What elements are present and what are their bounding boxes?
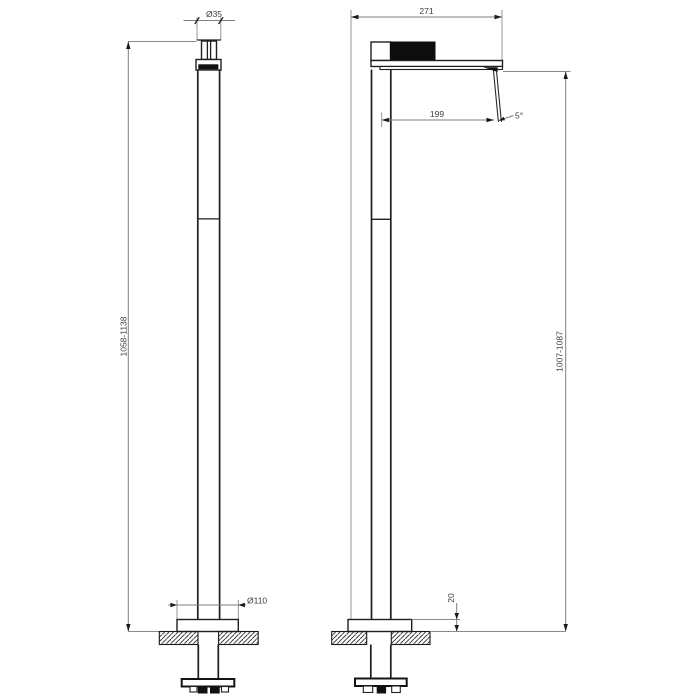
under-floor-shank (182, 645, 235, 694)
arrowhead (564, 72, 568, 80)
dim-label-base-diameter: Ø110 (247, 596, 267, 606)
floor-section (128, 632, 258, 645)
dim-label-reach: 199 (430, 109, 444, 119)
arrowhead (499, 117, 505, 121)
top-diameter-dimension: Ø35 (184, 9, 236, 40)
handle-body (202, 41, 217, 60)
floor-hatch (219, 632, 259, 645)
mounting-bolt (222, 687, 229, 693)
faucet-handle (196, 40, 221, 70)
arrowhead (126, 624, 130, 632)
height-dimension: 1058-1138 (119, 42, 197, 632)
drawing-page: Ø35 1058-1138 Ø110 (0, 0, 700, 700)
water-stream (493, 70, 501, 122)
spout-body (371, 42, 391, 61)
mounting-bolt (210, 687, 220, 694)
spout-reach-dimension: 199 (382, 109, 494, 127)
floor-hatch (159, 632, 198, 645)
arrowhead (455, 625, 460, 632)
base-plate-outline (177, 620, 238, 632)
arrowhead (564, 624, 568, 632)
base-plate-outline (348, 620, 412, 632)
base-plate (177, 620, 238, 632)
depth-dimension: 271 (351, 6, 502, 620)
arrowhead (126, 42, 130, 50)
arrowhead (170, 603, 177, 608)
under-floor-shank (355, 645, 407, 694)
base-diameter-dimension: Ø110 (168, 596, 267, 620)
collar-band (198, 64, 218, 69)
spout-angle-annotation: 5° (499, 111, 524, 121)
arrowhead (238, 603, 245, 608)
floor-hatch (391, 632, 430, 645)
dim-label-spout-height: 1007-1087 (555, 331, 565, 372)
mounting-flange (182, 679, 235, 687)
arrowhead (495, 15, 503, 19)
dim-label-depth: 271 (419, 6, 433, 16)
mounting-flange (355, 679, 407, 687)
dim-label-base-height: 20 (446, 593, 456, 603)
dim-label-height: 1058-1138 (119, 316, 129, 356)
arrowhead (455, 613, 460, 620)
column (372, 70, 391, 621)
spout-handle-black (391, 42, 436, 61)
dim-label-angle: 5° (515, 111, 523, 121)
mounting-bolt (392, 686, 401, 693)
spout-assembly (371, 42, 503, 72)
floor-section (332, 632, 566, 645)
base-height-dimension: 20 (412, 593, 460, 631)
dim-label-top-diameter: Ø35 (206, 9, 222, 19)
base-plate (348, 620, 412, 632)
arrowhead (351, 15, 359, 19)
mounting-bolt (190, 687, 197, 693)
arrowhead (487, 118, 495, 122)
spout-height-dimension: 1007-1087 (503, 72, 571, 632)
spout-underside (380, 67, 503, 70)
technical-drawing: Ø35 1058-1138 Ø110 (0, 0, 700, 700)
mounting-bolt (363, 686, 372, 693)
column (198, 70, 220, 620)
side-view: 271 199 5° (332, 6, 571, 694)
front-view: Ø35 1058-1138 Ø110 (119, 9, 268, 694)
arrowhead (382, 118, 390, 122)
mounting-bolt (377, 686, 386, 694)
floor-hatch (332, 632, 367, 645)
mounting-bolt (198, 687, 208, 694)
spout-arm (371, 61, 503, 67)
